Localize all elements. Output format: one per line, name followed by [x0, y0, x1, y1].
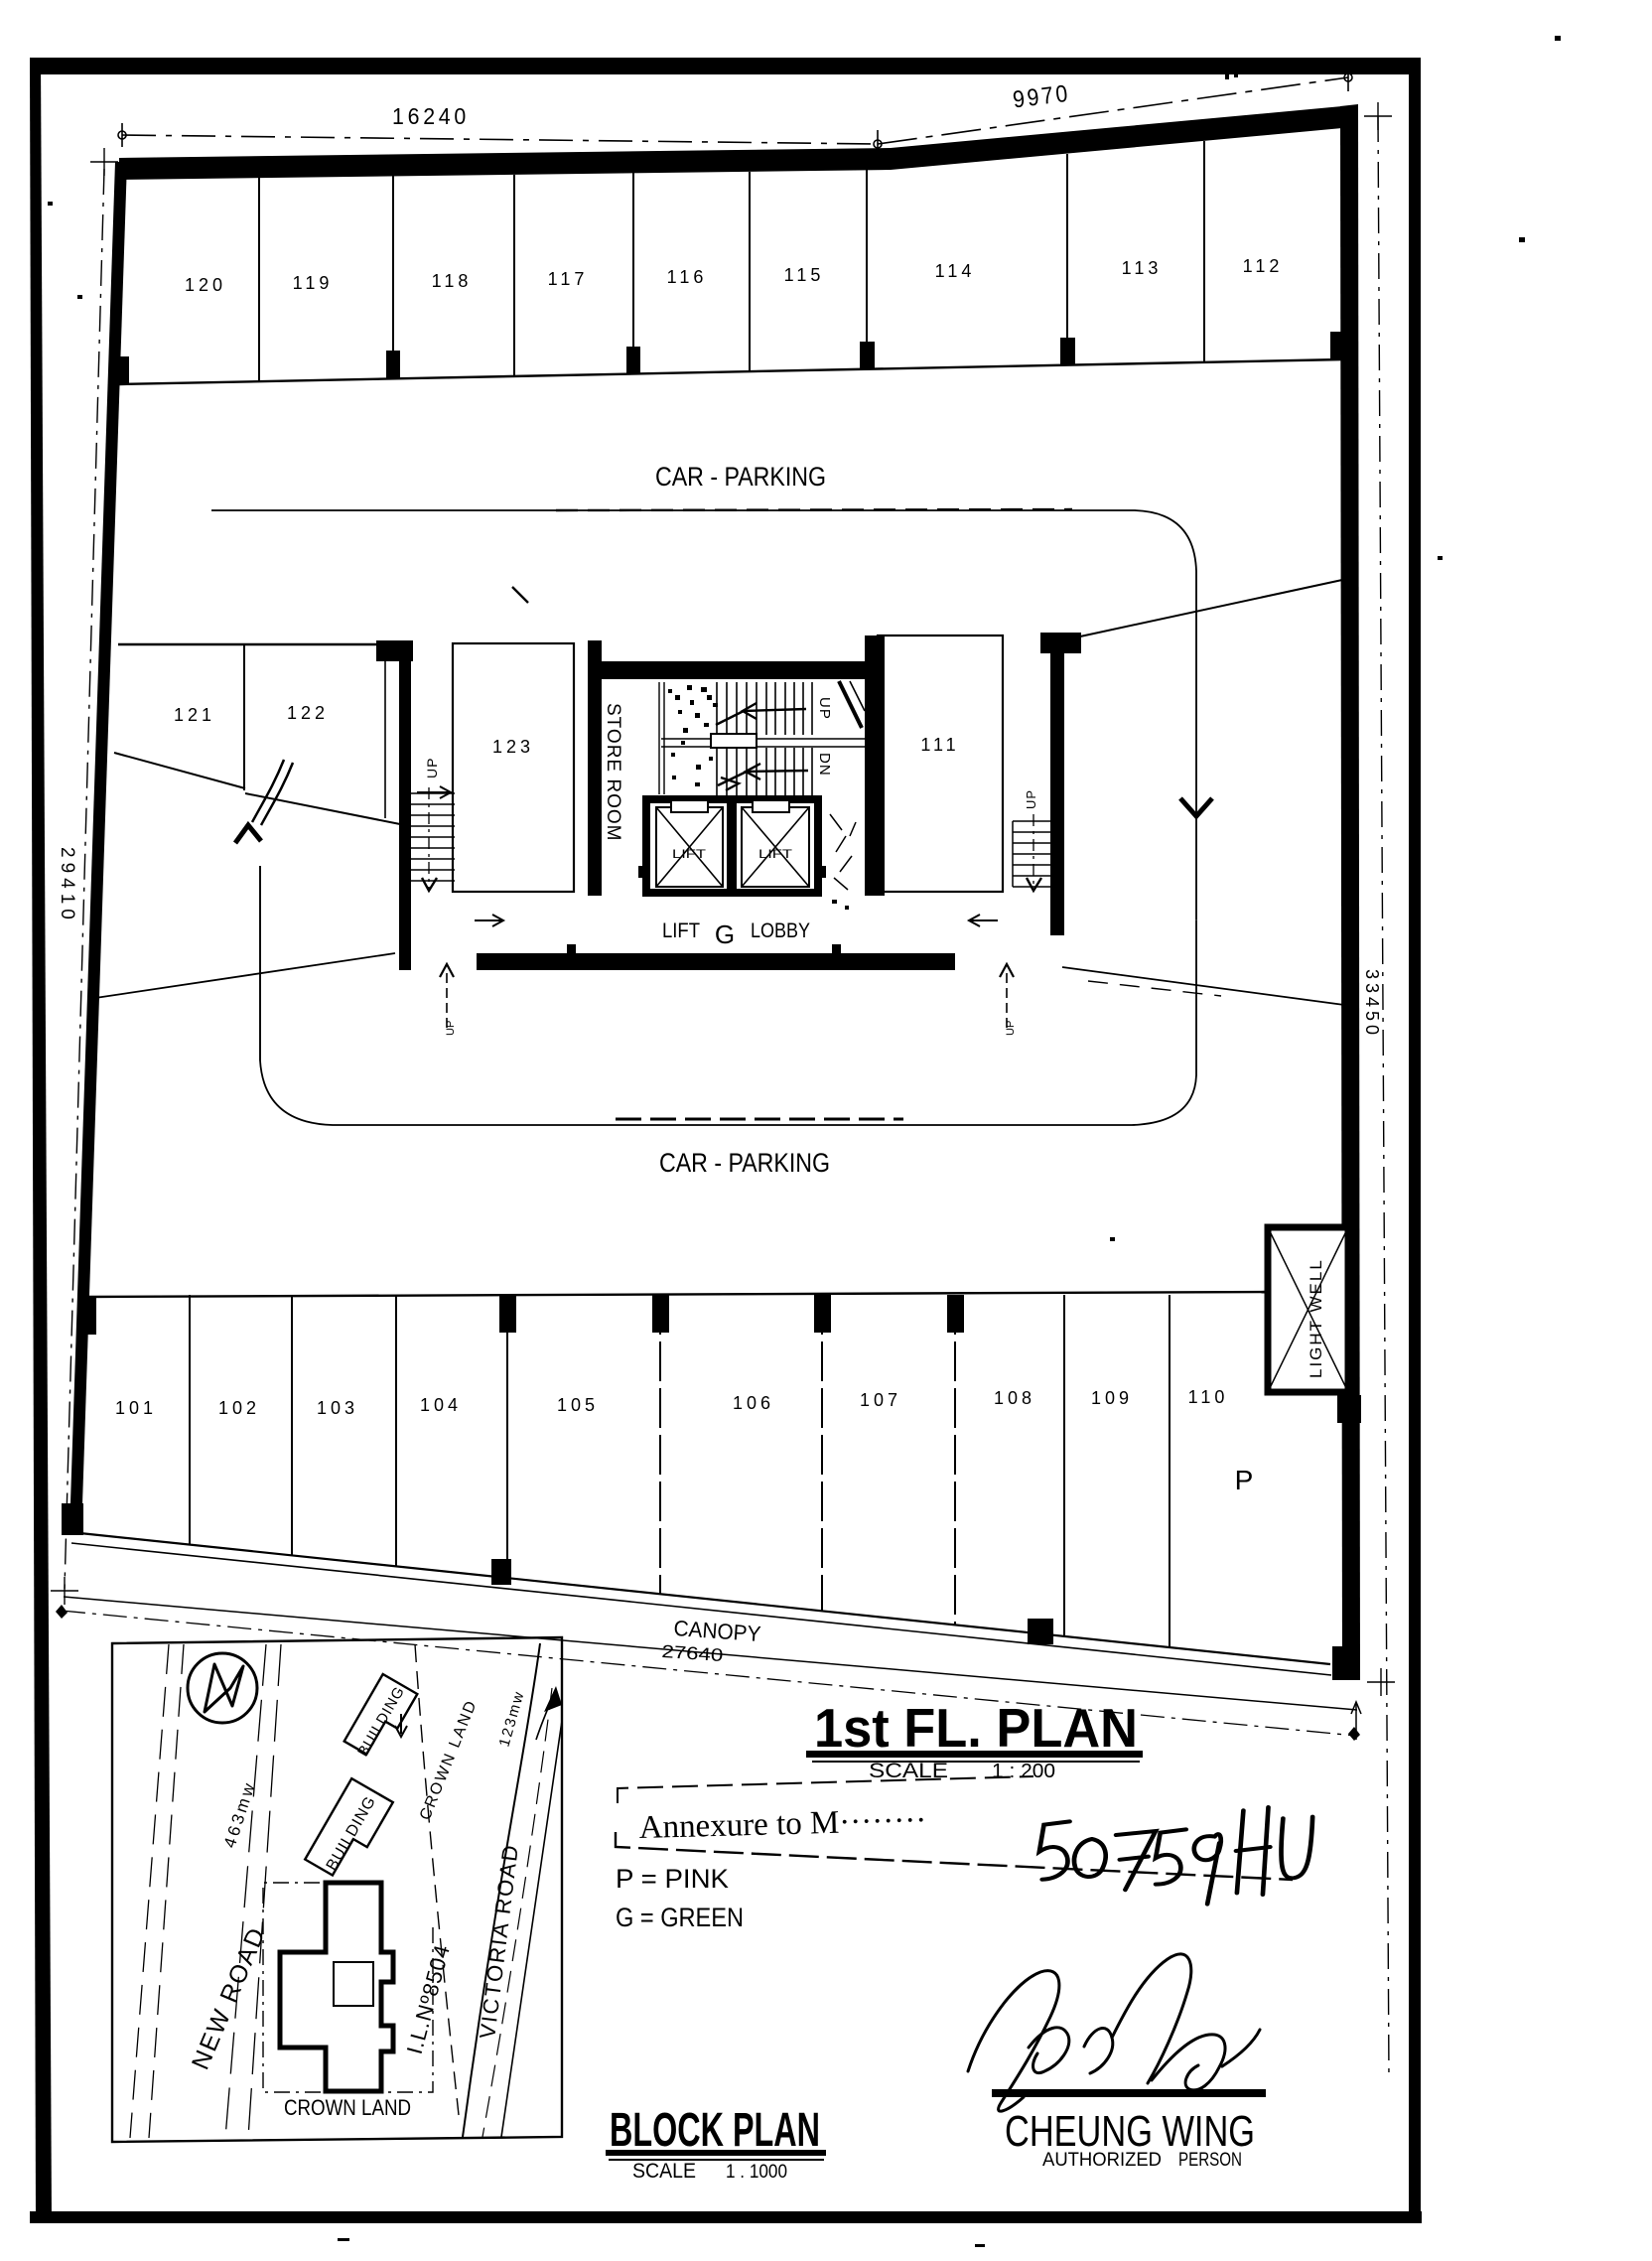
svg-text:UP: UP: [1005, 1021, 1017, 1036]
svg-text:115: 115: [784, 265, 825, 285]
svg-text:102: 102: [218, 1398, 260, 1418]
svg-text:LIFT: LIFT: [662, 919, 700, 942]
svg-text:105: 105: [557, 1395, 599, 1415]
svg-text:121: 121: [174, 705, 215, 725]
svg-text:Annexure to M········: Annexure to M········: [638, 1802, 926, 1846]
svg-text:108: 108: [994, 1388, 1035, 1408]
svg-text:1 . 1000: 1 . 1000: [726, 2162, 787, 2183]
svg-text:LIFT: LIFT: [672, 847, 707, 861]
svg-text:UP: UP: [424, 758, 440, 778]
svg-text:122: 122: [287, 703, 329, 723]
svg-text:CAR - PARKING: CAR - PARKING: [655, 462, 826, 492]
svg-text:CAR - PARKING: CAR - PARKING: [659, 1148, 830, 1178]
svg-text:G: G: [715, 919, 735, 949]
svg-text:BLOCK PLAN: BLOCK PLAN: [610, 2104, 820, 2157]
svg-text:119: 119: [293, 273, 334, 293]
svg-text:114: 114: [935, 261, 976, 281]
svg-text:116: 116: [667, 267, 708, 287]
svg-text:LOBBY: LOBBY: [751, 919, 810, 942]
svg-text:110: 110: [1188, 1387, 1229, 1407]
svg-text:16240: 16240: [392, 103, 470, 129]
svg-text:LIFT: LIFT: [758, 847, 793, 861]
svg-text:107: 107: [860, 1390, 901, 1410]
svg-text:CHEUNG WING: CHEUNG WING: [1005, 2107, 1255, 2156]
svg-text:118: 118: [432, 271, 473, 291]
svg-text:LIGHT WELL: LIGHT WELL: [1307, 1258, 1325, 1378]
svg-text:UP: UP: [1024, 789, 1038, 809]
svg-text:112: 112: [1243, 256, 1284, 276]
svg-text:106: 106: [733, 1393, 774, 1413]
svg-text:G = GREEN: G = GREEN: [616, 1903, 744, 1932]
svg-text:113: 113: [1122, 258, 1163, 278]
svg-text:123: 123: [492, 737, 534, 757]
svg-text:120: 120: [185, 275, 226, 295]
svg-text:104: 104: [420, 1395, 462, 1415]
svg-text:P = PINK: P = PINK: [616, 1864, 729, 1894]
svg-text:SCALE: SCALE: [632, 2160, 696, 2183]
svg-text:AUTHORIZED: AUTHORIZED: [1042, 2150, 1162, 2171]
svg-text:1 : 200: 1 : 200: [992, 1761, 1055, 1782]
svg-text:UP: UP: [816, 697, 833, 720]
svg-text:UP: UP: [445, 1021, 457, 1036]
svg-text:CROWN LAND: CROWN LAND: [284, 2095, 411, 2120]
svg-text:103: 103: [317, 1398, 358, 1418]
svg-text:STORE ROOM: STORE ROOM: [603, 703, 623, 842]
svg-text:111: 111: [920, 735, 959, 755]
svg-text:101: 101: [115, 1398, 157, 1418]
svg-text:109: 109: [1091, 1388, 1133, 1408]
svg-text:117: 117: [548, 269, 589, 289]
svg-text:1st FL. PLAN: 1st FL. PLAN: [814, 1697, 1138, 1759]
svg-text:PERSON: PERSON: [1178, 2150, 1242, 2171]
svg-text:P: P: [1235, 1465, 1254, 1495]
svg-text:29410: 29410: [57, 847, 77, 924]
svg-text:DN: DN: [816, 753, 833, 777]
svg-text:33450: 33450: [1362, 969, 1382, 1039]
